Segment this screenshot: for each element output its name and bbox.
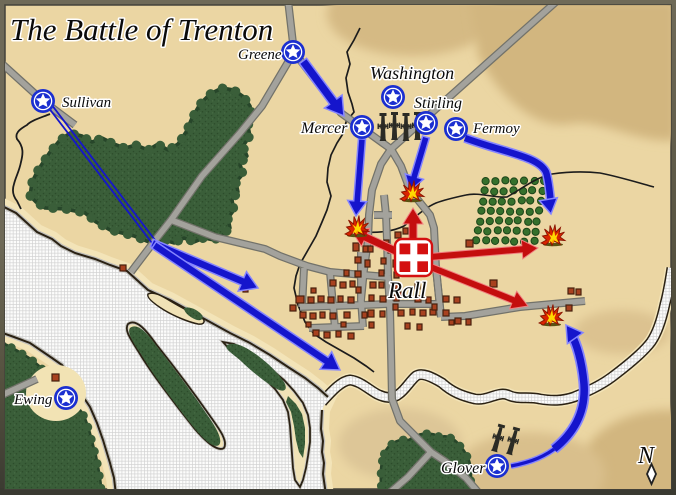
svg-text:Washington: Washington [370, 63, 454, 83]
svg-text:Ewing: Ewing [13, 392, 53, 408]
svg-text:Fermoy: Fermoy [472, 121, 520, 137]
svg-text:Greene: Greene [238, 47, 282, 63]
svg-text:Sullivan: Sullivan [62, 95, 111, 111]
svg-text:Stirling: Stirling [414, 95, 462, 112]
svg-text:Rall: Rall [387, 278, 426, 303]
svg-text:The Battle of Trenton: The Battle of Trenton [10, 12, 273, 47]
svg-text:Glover: Glover [441, 460, 486, 477]
svg-text:N: N [637, 443, 656, 469]
svg-text:Mercer: Mercer [300, 120, 348, 137]
